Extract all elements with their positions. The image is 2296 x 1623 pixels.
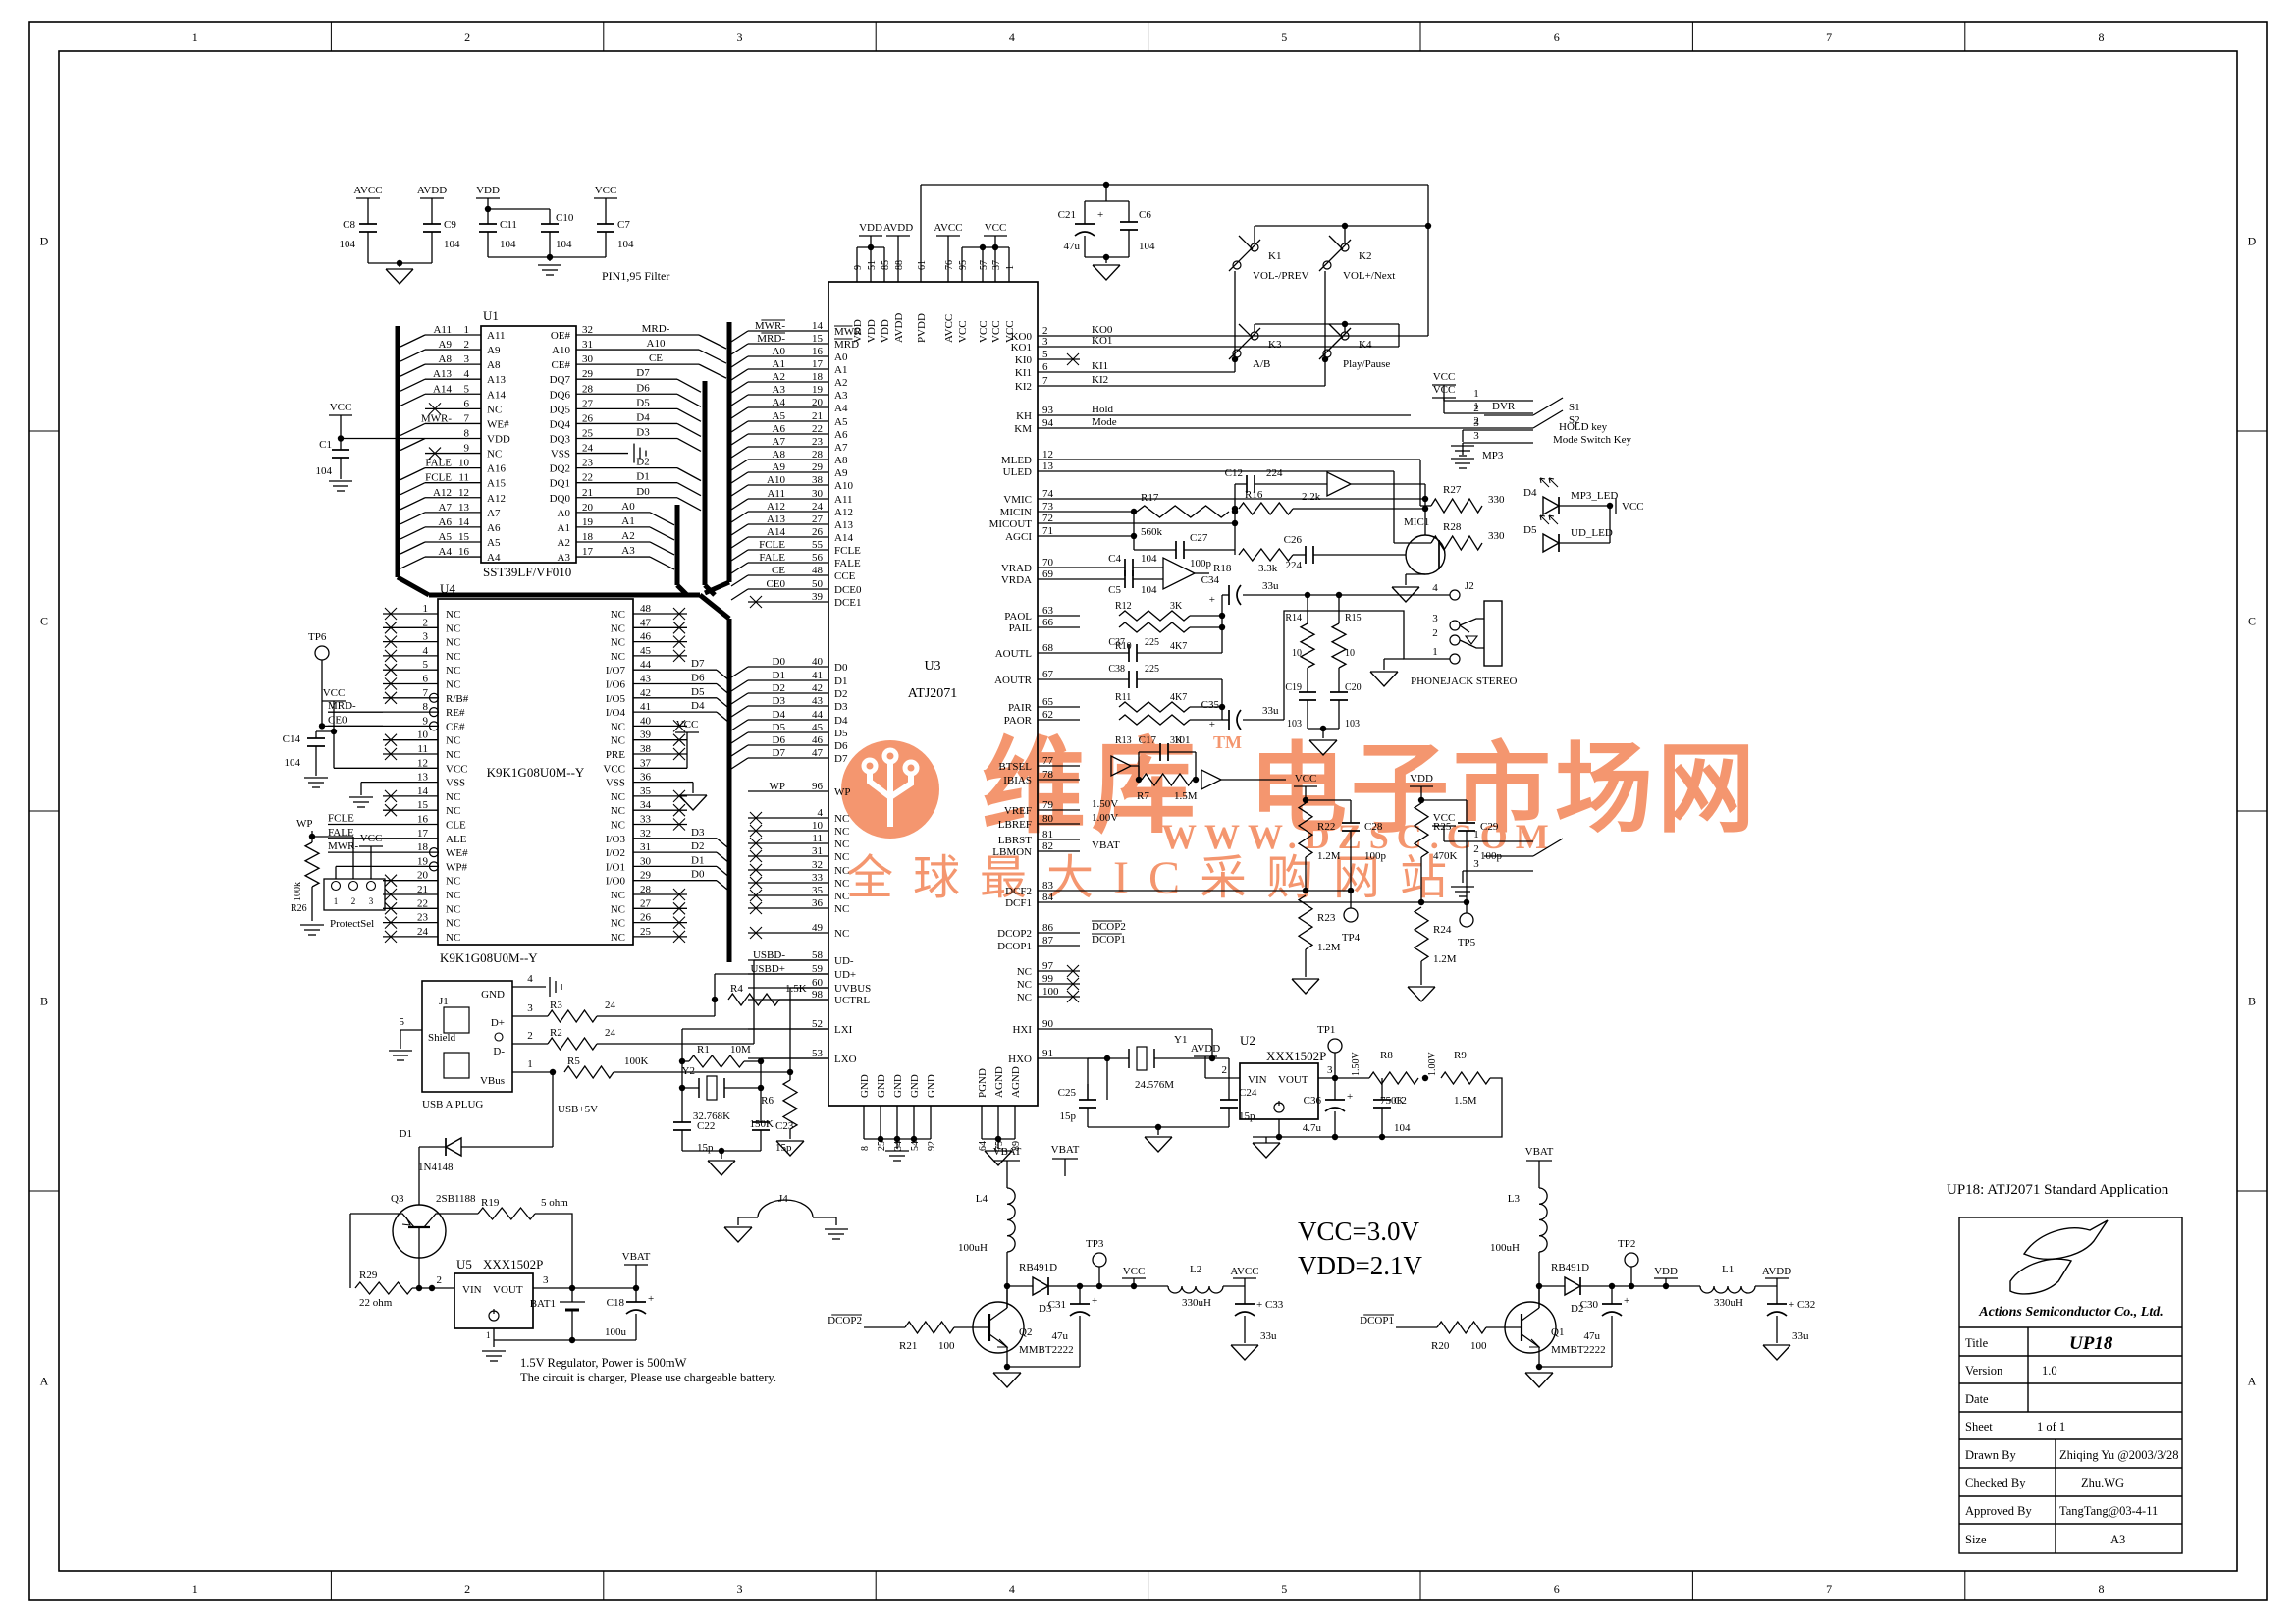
label: NC: [611, 932, 625, 944]
shield-label: Shield: [428, 1032, 456, 1044]
label: NC: [446, 932, 460, 944]
key-name: A/B: [1253, 358, 1270, 370]
label: 2SB1188: [436, 1193, 476, 1205]
pin-number: 14: [458, 516, 470, 528]
ref-MIC1: MIC1: [1404, 516, 1429, 528]
ref-J1: J1: [439, 996, 449, 1007]
label: VCC: [978, 320, 989, 343]
ref-R14: R14: [1285, 613, 1302, 623]
switch-ref: S1: [1569, 402, 1580, 413]
net-vbat: VBAT: [1525, 1146, 1554, 1158]
pin-number: 74: [1042, 488, 1054, 500]
tp6-label: TP6: [308, 631, 327, 643]
pin-number: 7: [423, 687, 429, 699]
label: 104: [340, 239, 356, 250]
label: 1: [334, 896, 339, 906]
net-usb5v: USB+5V: [558, 1104, 598, 1115]
label: D5: [834, 728, 848, 739]
label: NC: [611, 721, 625, 732]
ref-C10: C10: [556, 212, 574, 224]
ref-res: R21: [899, 1340, 917, 1352]
watermark-tm: TM: [1213, 732, 1242, 752]
label: NC: [611, 918, 625, 930]
net-label: CE0: [766, 578, 785, 590]
net-label: D4: [636, 411, 650, 423]
net-label: MRD-: [328, 700, 356, 712]
pin-number: 5: [400, 1016, 405, 1028]
label: NC: [487, 404, 502, 415]
label: NC: [834, 928, 849, 940]
label: 4.7u: [1303, 1122, 1322, 1134]
label: 47u: [1064, 241, 1081, 252]
ref-C26: C26: [1284, 534, 1303, 546]
label: 150K: [750, 1118, 774, 1130]
pin-number: 3: [423, 631, 429, 643]
net-label: VCC: [1433, 384, 1456, 396]
net-label: AVCC: [353, 185, 382, 196]
pin-number: 15: [812, 333, 824, 345]
net-label: D3: [691, 827, 705, 839]
label: VSS: [606, 778, 625, 789]
tb-value: TangTang@03-4-11: [2059, 1504, 2158, 1518]
border-col: 7: [1826, 30, 1832, 44]
pin-number: 8: [423, 701, 429, 713]
net-label: USBD+: [750, 963, 785, 975]
pin-number: 2: [1222, 1064, 1228, 1076]
pin-number: 45: [640, 645, 652, 657]
net-label: A8: [439, 353, 453, 365]
net-label: D6: [773, 734, 786, 746]
transistor-part: MMBT2222: [1551, 1344, 1606, 1356]
net-label: A7: [439, 502, 453, 514]
transistor-part: MMBT2222: [1019, 1344, 1074, 1356]
label: A15: [487, 478, 506, 490]
pin-number: 11: [458, 472, 469, 484]
label: D6: [834, 740, 848, 752]
label: 1.5M: [1454, 1095, 1477, 1107]
tb-label: Date: [1965, 1392, 1989, 1406]
label: LXO: [834, 1054, 857, 1065]
pin-number: 13: [458, 502, 470, 514]
net-label: VDD: [476, 185, 500, 196]
label: VCC: [990, 320, 1002, 343]
tb-value: Zhiqing Yu @2003/3/28: [2059, 1448, 2178, 1462]
net-label: A2: [773, 371, 785, 383]
pin-number: 1: [464, 324, 470, 336]
border-row: D: [2248, 235, 2257, 248]
ref-cap: C30: [1580, 1299, 1599, 1311]
label: NC: [611, 903, 625, 915]
label: D-: [493, 1046, 505, 1057]
label: NC: [611, 805, 625, 817]
pin-number: 6: [1042, 361, 1048, 373]
ref-diode-part: RB491D: [1551, 1262, 1589, 1273]
net-label: A11: [433, 324, 452, 336]
net-label: VCC: [1433, 371, 1456, 383]
label: I/O7: [606, 665, 626, 676]
pin-number: 3: [1327, 1064, 1333, 1076]
label: RE#: [446, 707, 465, 719]
label: 100uH: [958, 1242, 988, 1254]
label: CCE: [834, 570, 856, 582]
pin-number: 48: [640, 603, 652, 615]
label: MICOUT: [989, 518, 1033, 530]
border-col: 3: [737, 1582, 743, 1596]
label: A13: [834, 519, 853, 531]
pin-number: 64: [978, 1141, 988, 1151]
pin-number: 10: [417, 730, 429, 741]
label: NC: [446, 876, 460, 888]
net-label: A5: [439, 531, 453, 543]
label: 33u: [1262, 705, 1279, 717]
label: 10: [1345, 648, 1355, 659]
label: A9: [487, 345, 501, 356]
pin-number: 8: [464, 427, 470, 439]
net-label: AVCC: [1230, 1266, 1258, 1277]
pin-number: 34: [640, 799, 652, 811]
chip-ref-u2: U2: [1240, 1033, 1255, 1048]
ref-C25: C25: [1058, 1087, 1077, 1099]
pin-number: 33: [812, 872, 824, 884]
label: CE#: [551, 359, 570, 371]
ref-R11: R11: [1115, 692, 1131, 703]
net-label: A1: [773, 358, 785, 370]
label: IBIAS: [1003, 775, 1032, 786]
key-name: Play/Pause: [1343, 358, 1390, 370]
net-label: VCC: [1123, 1266, 1146, 1277]
label: 104: [316, 465, 333, 477]
chip-part-u2: XXX1502P: [1266, 1049, 1326, 1063]
net-label: D4: [773, 709, 786, 721]
label: VDD: [487, 433, 510, 445]
label: D4: [834, 715, 848, 727]
pin-number: 1: [423, 603, 429, 615]
tb-label: Approved By: [1965, 1504, 2032, 1518]
net-label: VCC: [360, 833, 383, 844]
label: 24: [605, 1000, 616, 1011]
label: LBRST: [998, 835, 1033, 846]
label: 104: [1141, 584, 1157, 596]
pin-number: 14: [417, 785, 429, 797]
label: NC: [611, 791, 625, 803]
ref-ind: L3: [1508, 1193, 1521, 1205]
pin-number: 36: [640, 772, 652, 784]
label: VDD: [880, 319, 891, 343]
switch-ref: S2: [1569, 414, 1580, 426]
pin-number: 20: [582, 502, 594, 514]
label: 2.2k: [1302, 491, 1321, 503]
label: I/O6: [606, 679, 626, 691]
chip-ref-u4: U4: [440, 581, 455, 596]
note-filter: PIN1,95 Filter: [602, 269, 669, 283]
label: VIN: [462, 1284, 482, 1296]
label: NC: [834, 839, 849, 850]
pin-number: 28: [812, 449, 824, 460]
pin-number: 9: [853, 265, 864, 270]
label: +: [1097, 209, 1103, 221]
usb-plug-label: USB A PLUG: [422, 1099, 483, 1110]
label: VDD: [852, 319, 864, 343]
pin-number: 4: [527, 973, 533, 985]
label: FCLE: [834, 545, 861, 557]
net-label: D0: [691, 869, 705, 881]
pin-number: 1: [1432, 646, 1438, 658]
net-label: 1.00V: [1092, 812, 1118, 824]
label: 47u: [1052, 1330, 1069, 1342]
label: 104: [556, 239, 572, 250]
pin-number: 97: [1042, 960, 1054, 972]
ref-C6: C6: [1139, 209, 1151, 221]
label: A1: [834, 364, 847, 376]
label: 15p: [697, 1142, 714, 1154]
pin-number: 44: [812, 709, 824, 721]
pin-number: 18: [582, 531, 594, 543]
label: A0: [558, 508, 571, 519]
company-name: Actions Semiconductor Co., Ltd.: [1978, 1305, 2163, 1320]
pin-number: 31: [812, 845, 823, 857]
label: A5: [834, 416, 848, 428]
net-label: A13: [767, 514, 785, 525]
chip-part-u1: SST39LF/VF010: [483, 565, 571, 579]
tb-label: Drawn By: [1965, 1448, 2016, 1462]
label: CE#: [446, 721, 465, 732]
label: A13: [487, 374, 506, 386]
pin-number: 42: [812, 682, 823, 694]
ref-R19: R19: [481, 1197, 500, 1209]
net-wp: WP: [296, 818, 313, 830]
label: KI2: [1015, 381, 1032, 393]
ref-R4: R4: [730, 983, 743, 995]
net-label: MRD-: [642, 323, 670, 335]
net-label: D3: [773, 695, 786, 707]
label: 104: [617, 239, 634, 250]
net-label: VCC: [330, 402, 352, 413]
net-label: Hold: [1092, 404, 1114, 415]
label: DQ4: [550, 418, 571, 430]
label: DQ6: [550, 389, 571, 401]
pin-number: 88: [894, 260, 905, 270]
pin-number: 63: [1042, 605, 1054, 617]
pin-number: 11: [812, 833, 823, 844]
pin-number: 4: [1432, 582, 1438, 594]
label: UVBUS: [834, 983, 871, 995]
pin-number: 39: [640, 730, 652, 741]
net-label: KI1: [1092, 360, 1108, 372]
label: DQ1: [550, 478, 570, 490]
label: VMIC: [1003, 494, 1032, 506]
ref-C12: C12: [1225, 467, 1243, 479]
ref-R26: R26: [291, 903, 307, 914]
label: A10: [834, 480, 853, 492]
label: GND: [481, 989, 505, 1001]
pin-number: 12: [458, 487, 469, 499]
label: HXO: [1008, 1054, 1032, 1065]
key-ref: K4: [1359, 339, 1372, 351]
label: A1: [558, 522, 570, 534]
pin-number: 13: [1042, 460, 1054, 472]
pin-number: 15: [458, 531, 470, 543]
net-vbat: VBAT: [993, 1146, 1022, 1158]
net-label: A11: [767, 488, 785, 500]
key-name: VOL+/Next: [1343, 270, 1395, 282]
label: 1.2M: [1433, 953, 1457, 965]
tp-label: TP2: [1618, 1238, 1635, 1250]
label: 3: [369, 896, 374, 906]
pin-number: 70: [1042, 557, 1054, 568]
pin-number: 7: [464, 412, 470, 424]
label: UCTRL: [834, 995, 870, 1006]
ref-C4: C4: [1108, 553, 1121, 565]
label: 15p: [1060, 1110, 1077, 1122]
label: NC: [1017, 979, 1032, 991]
net-label: VCC: [985, 222, 1007, 234]
label: 15p: [1239, 1110, 1255, 1122]
label: VOUT: [1278, 1074, 1308, 1086]
pin-number: 27: [582, 398, 594, 409]
pin-number: 73: [1042, 501, 1054, 513]
label: NC: [446, 637, 460, 649]
pin-number: 93: [1042, 405, 1054, 416]
ref-R28: R28: [1443, 521, 1462, 533]
label: DCE0: [834, 584, 862, 596]
label: A6: [487, 522, 501, 534]
schematic-canvas: PIN1,95 Filter 1.5V Regulator, Power is …: [0, 0, 2296, 1623]
ref-R15: R15: [1345, 613, 1362, 623]
pin-number: 31: [640, 841, 651, 853]
pin-number: 24: [582, 443, 594, 455]
ref-R25: R25: [1433, 821, 1452, 833]
pin-number: 33: [640, 814, 652, 826]
label: 15p: [775, 1142, 792, 1154]
tb-value: 1.0: [2042, 1364, 2057, 1378]
net-label: D3: [636, 426, 650, 438]
ref-ind: L4: [976, 1193, 988, 1205]
pin-number: 30: [812, 488, 824, 500]
pin-number: 26: [812, 526, 824, 538]
border-row: C: [40, 615, 48, 628]
label: A16: [487, 463, 506, 475]
net-label: A13: [433, 368, 452, 380]
ref-J2: J2: [1465, 580, 1474, 592]
net-label: CE: [649, 352, 663, 364]
label: 5 ohm: [541, 1197, 568, 1209]
chip-ref-u5: U5: [456, 1257, 472, 1271]
pin-number: 7: [1042, 375, 1048, 387]
ref-R7: R7: [1137, 790, 1149, 802]
net-label: AVDD: [417, 185, 447, 196]
label: NC: [834, 891, 849, 902]
net-label: KO1: [1092, 335, 1112, 347]
label: VCC: [446, 763, 468, 775]
note-regulator-1: 1.5V Regulator, Power is 500mW: [520, 1356, 687, 1370]
label: 10: [1292, 648, 1302, 659]
ref-R6: R6: [761, 1095, 774, 1107]
label: VCC: [603, 763, 625, 775]
label: 100uH: [1490, 1242, 1520, 1254]
border-col: 1: [192, 30, 198, 44]
pin-number: 29: [582, 368, 594, 380]
label: NC: [834, 826, 849, 838]
label: DCF2: [1005, 886, 1032, 897]
label: A2: [558, 537, 570, 549]
ref-res: R20: [1431, 1340, 1450, 1352]
label: NC: [834, 903, 849, 915]
pin-number: 55: [812, 539, 824, 551]
pin-number: 3: [543, 1274, 549, 1286]
label: VCC: [957, 320, 969, 343]
pin-number: 53: [812, 1048, 824, 1059]
ref-C14: C14: [283, 733, 301, 745]
pin-number: 99: [1042, 973, 1054, 985]
pin-number: 28: [582, 383, 594, 395]
ref-C24: C24: [1239, 1087, 1257, 1099]
schematic-page: PIN1,95 Filter 1.5V Regulator, Power is …: [0, 0, 2296, 1623]
pin-number: 61: [917, 260, 928, 270]
label: MLED: [1001, 455, 1032, 466]
net-label: VBAT: [622, 1251, 651, 1263]
ref-R17: R17: [1141, 492, 1159, 504]
label: NC: [1017, 966, 1032, 978]
net-label: AVCC: [934, 222, 962, 234]
net-100v: 1.00V: [1427, 1052, 1438, 1077]
label: NC: [834, 813, 849, 825]
pin-number: 26: [640, 912, 652, 924]
note-vcc-voltage: VCC=3.0V: [1298, 1217, 1419, 1246]
label: 100p: [1480, 850, 1503, 862]
label: DCOP1: [997, 941, 1032, 952]
pin-number: 14: [812, 320, 824, 332]
pin-number: 3: [527, 1002, 533, 1014]
label: DQ5: [550, 404, 571, 415]
pin-number: 38: [640, 743, 652, 755]
tb-label: Size: [1965, 1533, 1987, 1546]
net-label: D6: [691, 673, 705, 684]
pin-number: 9: [464, 443, 470, 455]
pin-number: 22: [582, 472, 593, 484]
ref-Y1: Y1: [1174, 1034, 1187, 1046]
ref-D5: D5: [1523, 524, 1537, 536]
net-label: D5: [773, 722, 786, 733]
label: A8: [487, 359, 501, 371]
pin-number: 9: [423, 715, 429, 727]
pin-number: 12: [1042, 449, 1053, 460]
label: I/O3: [606, 834, 626, 845]
label: A4: [834, 403, 848, 414]
pin-number: 4: [818, 807, 824, 819]
net-label: VCC: [595, 185, 617, 196]
chip-part-u3: ATJ2071: [908, 686, 958, 701]
net-label: FALE: [425, 458, 452, 469]
pin-number: 98: [812, 989, 824, 1001]
net-label: AVDD: [1191, 1043, 1220, 1055]
pin-number: 20: [812, 397, 824, 408]
ref-C19: C19: [1285, 682, 1302, 693]
net-label: D5: [636, 397, 650, 408]
pin-number: 21: [812, 410, 823, 422]
border-col: 2: [464, 30, 470, 44]
ref-diode-part: RB491D: [1019, 1262, 1057, 1273]
ref-C27: C27: [1190, 532, 1208, 544]
net-label: A14: [767, 526, 785, 538]
ref-C5: C5: [1108, 584, 1121, 596]
net-label: CE0: [328, 714, 347, 726]
label: A12: [834, 507, 853, 518]
ref-R1: R1: [697, 1044, 710, 1055]
label: 224: [1286, 560, 1303, 571]
label: PAOL: [1004, 611, 1032, 622]
key-ref: K2: [1359, 250, 1371, 262]
pin-number: 48: [812, 565, 824, 576]
